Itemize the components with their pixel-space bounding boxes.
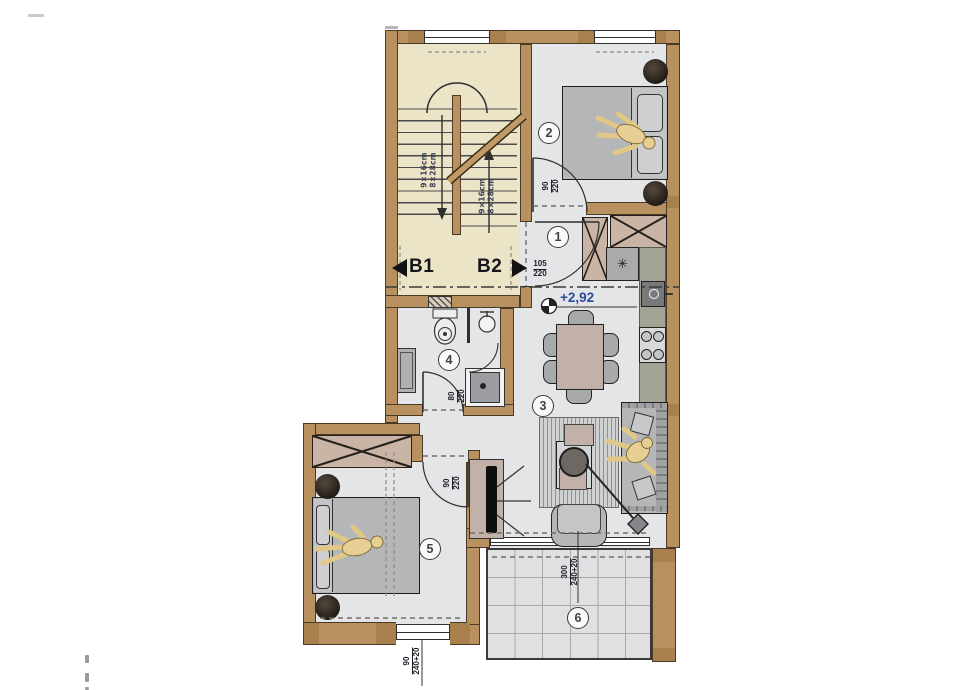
washing-machine-inner [400, 352, 413, 389]
stair-center-stringer [452, 95, 461, 235]
plant-pot [643, 181, 668, 206]
wall-segment [520, 286, 532, 308]
wall-segment [385, 404, 423, 416]
wall-pier [376, 623, 396, 644]
dim-height: 240+20 [413, 648, 422, 675]
section-arrow-right-icon [512, 259, 527, 277]
coffee-table-top [564, 424, 594, 446]
door-dim-bathroom: 80 220 [448, 389, 466, 402]
floor-plan-canvas: ✳ [0, 0, 960, 690]
sofa-edge [622, 403, 666, 408]
room-number-bedroom-left: 5 [419, 538, 441, 560]
sofa-edge [622, 506, 666, 511]
wall-pier [490, 31, 506, 43]
stair-flight-label: 9×16cm 8×28cm [479, 178, 496, 213]
grid-dash [85, 673, 89, 682]
wall-segment [652, 548, 676, 662]
stair-treads-right-flight [461, 98, 517, 235]
stair-tread-dim: 8×28cm [487, 178, 496, 213]
dining-chair [603, 360, 619, 384]
wall-pier [304, 623, 319, 644]
dining-chair [566, 388, 592, 404]
dim-height: 220 [533, 270, 546, 279]
dim-height: 220 [453, 476, 462, 489]
coffee-table-round-top [559, 447, 589, 477]
plant-pot [315, 474, 340, 499]
window-mullion [397, 632, 449, 633]
plant-pot [643, 59, 668, 84]
refrigerator: ✳ [606, 247, 639, 281]
door-dim-bedroom-left: 90 220 [443, 476, 461, 489]
wall-segment [666, 44, 680, 548]
wall-pier [578, 31, 594, 43]
wall-segment [385, 295, 520, 308]
dim-width: 105 [533, 260, 546, 269]
armchair-seat [557, 504, 601, 534]
wall-pier [653, 648, 675, 661]
room-number-entry: 1 [547, 226, 569, 248]
dim-width: 90 [403, 657, 412, 666]
section-label-b2: B2 [477, 256, 502, 278]
dim-height: 220 [458, 389, 467, 402]
room-number-bedroom-top: 2 [538, 122, 560, 144]
dim-bedroom-left-window: 90 240+20 [403, 648, 421, 675]
door-dim-entrance: 105 220 [533, 260, 546, 278]
room-number-text: 3 [540, 399, 547, 413]
wardrobe-cabinet [582, 217, 608, 281]
dim-width: 300 [561, 565, 570, 578]
tv-screen [486, 466, 497, 533]
pillow [637, 136, 663, 174]
dim-height: 240+20 [571, 559, 580, 586]
dim-balcony-door: 300 240+20 [561, 559, 579, 586]
pillow [316, 505, 330, 545]
stove-burner [653, 349, 664, 360]
room-number-text: 4 [446, 353, 453, 367]
door-dim-bedroom-top: 90 220 [542, 179, 560, 192]
dim-width: 90 [443, 479, 452, 488]
wall-pier [408, 31, 424, 43]
fridge-asterisk-icon: ✳ [617, 256, 628, 272]
wall-pier [450, 623, 470, 644]
wall-pier [667, 196, 679, 208]
reference-mark [385, 26, 398, 29]
room-number-text: 6 [575, 611, 582, 625]
section-label-b1: B1 [409, 256, 434, 278]
reference-mark [28, 14, 44, 17]
sofa-backrest [656, 404, 667, 512]
wall-segment [303, 423, 420, 435]
section-arrow-left-icon [392, 259, 407, 277]
shower-drain [480, 383, 486, 389]
window [396, 624, 450, 640]
room-number-bathroom: 4 [438, 349, 460, 371]
window [424, 30, 490, 44]
stair-flight-label: 9×16cm 8×28cm [421, 152, 438, 187]
wall-segment [520, 44, 532, 222]
room-number-living: 3 [532, 395, 554, 417]
window-mullion [595, 37, 655, 38]
plant-pot [315, 595, 340, 620]
level-marker-text: +2,92 [560, 290, 594, 305]
stove-burner [641, 331, 652, 342]
room-number-text: 1 [555, 230, 562, 244]
room-number-text: 5 [427, 542, 434, 556]
window [594, 30, 656, 44]
stove-burner [641, 349, 652, 360]
wardrobe-cabinet [610, 215, 667, 248]
wall-pier [667, 404, 679, 416]
kitchen-sink [641, 281, 665, 307]
grid-dash [85, 655, 89, 663]
pillow [316, 549, 330, 589]
dim-height: 220 [552, 179, 561, 192]
wardrobe-cabinet [312, 435, 412, 468]
dim-width: 90 [542, 182, 551, 191]
dining-chair [603, 333, 619, 357]
room-number-text: 2 [546, 126, 553, 140]
stair-tread-dim: 8×28cm [429, 152, 438, 187]
dim-width: 80 [448, 392, 457, 401]
dining-table [556, 324, 604, 390]
room-number-balcony: 6 [567, 607, 589, 629]
wall-pier [653, 549, 675, 562]
vent-shaft-hatch [428, 296, 452, 308]
stove-burner [653, 331, 664, 342]
pillow [637, 94, 663, 132]
window-mullion [425, 37, 489, 38]
